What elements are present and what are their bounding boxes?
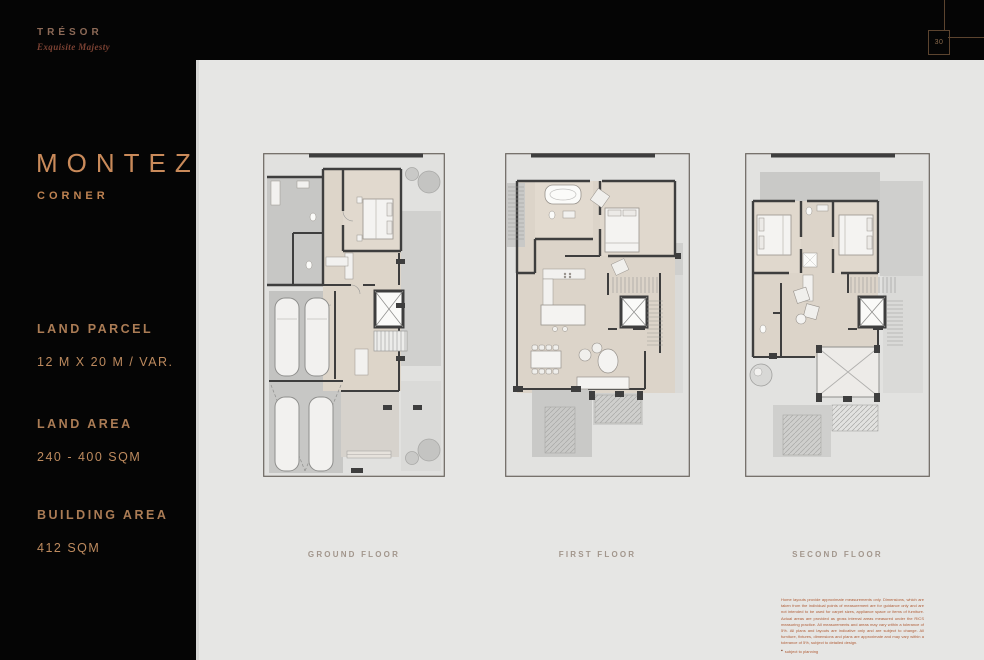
brand-name: TRÉSOR <box>37 27 110 38</box>
disclaimer-footnote: ▪ subject to planning <box>781 649 924 654</box>
spec-value: 240 - 400 SQM <box>37 450 141 464</box>
corner-line-vertical <box>944 0 945 31</box>
unit-name: MONTEZ <box>36 148 200 179</box>
brand-block: TRÉSOR Exquisite Majesty <box>37 27 110 52</box>
disclaimer-block: Home layouts provide approximate measure… <box>781 597 924 654</box>
first-floor-plan-drawing <box>505 153 690 477</box>
spec-label: LAND AREA <box>37 417 141 431</box>
ground-floor-plan <box>263 153 445 482</box>
ground-floor-label: GROUND FLOOR <box>263 550 445 559</box>
first-floor-label: FIRST FLOOR <box>505 550 690 559</box>
second-floor-plan <box>745 153 930 482</box>
spec-value: 412 SQM <box>37 541 168 555</box>
square-bullet-icon: ▪ <box>781 649 783 654</box>
second-floor-plan-drawing <box>745 153 930 477</box>
disclaimer-text: Home layouts provide approximate measure… <box>781 597 924 647</box>
brand-tagline: Exquisite Majesty <box>37 42 110 52</box>
page-number: 30 <box>935 39 944 46</box>
page-number-box: 30 <box>928 30 950 55</box>
ground-floor-plan-drawing <box>263 153 445 477</box>
spec-land-parcel: LAND PARCEL 12 M X 20 M / VAR. <box>37 322 174 369</box>
brochure-page: TRÉSOR Exquisite Majesty 30 MONTEZ CORNE… <box>0 0 984 660</box>
spec-building-area: BUILDING AREA 412 SQM <box>37 508 168 555</box>
spec-land-area: LAND AREA 240 - 400 SQM <box>37 417 141 464</box>
first-floor-plan <box>505 153 690 482</box>
spec-value: 12 M X 20 M / VAR. <box>37 355 174 369</box>
spec-label: LAND PARCEL <box>37 322 174 336</box>
spec-label: BUILDING AREA <box>37 508 168 522</box>
second-floor-label: SECOND FLOOR <box>745 550 930 559</box>
unit-type: CORNER <box>37 190 109 202</box>
footnote-text: subject to planning <box>785 649 818 654</box>
content-panel: GROUND FLOOR FIRST FLOOR SECOND FLOOR Ho… <box>196 60 984 660</box>
corner-line-horizontal <box>948 37 984 38</box>
